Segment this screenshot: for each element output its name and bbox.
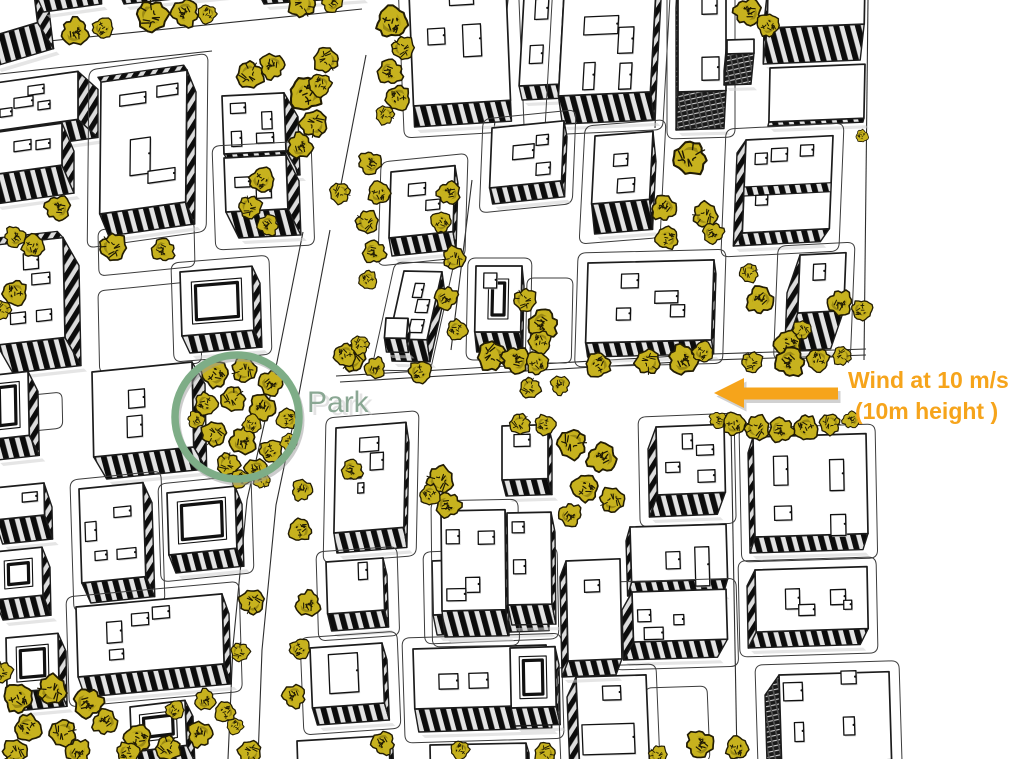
svg-text:Wind at 10 m/s: Wind at 10 m/s [848,367,1009,393]
svg-text:Park: Park [307,386,370,419]
svg-text:(10m height ): (10m height ) [855,398,998,424]
